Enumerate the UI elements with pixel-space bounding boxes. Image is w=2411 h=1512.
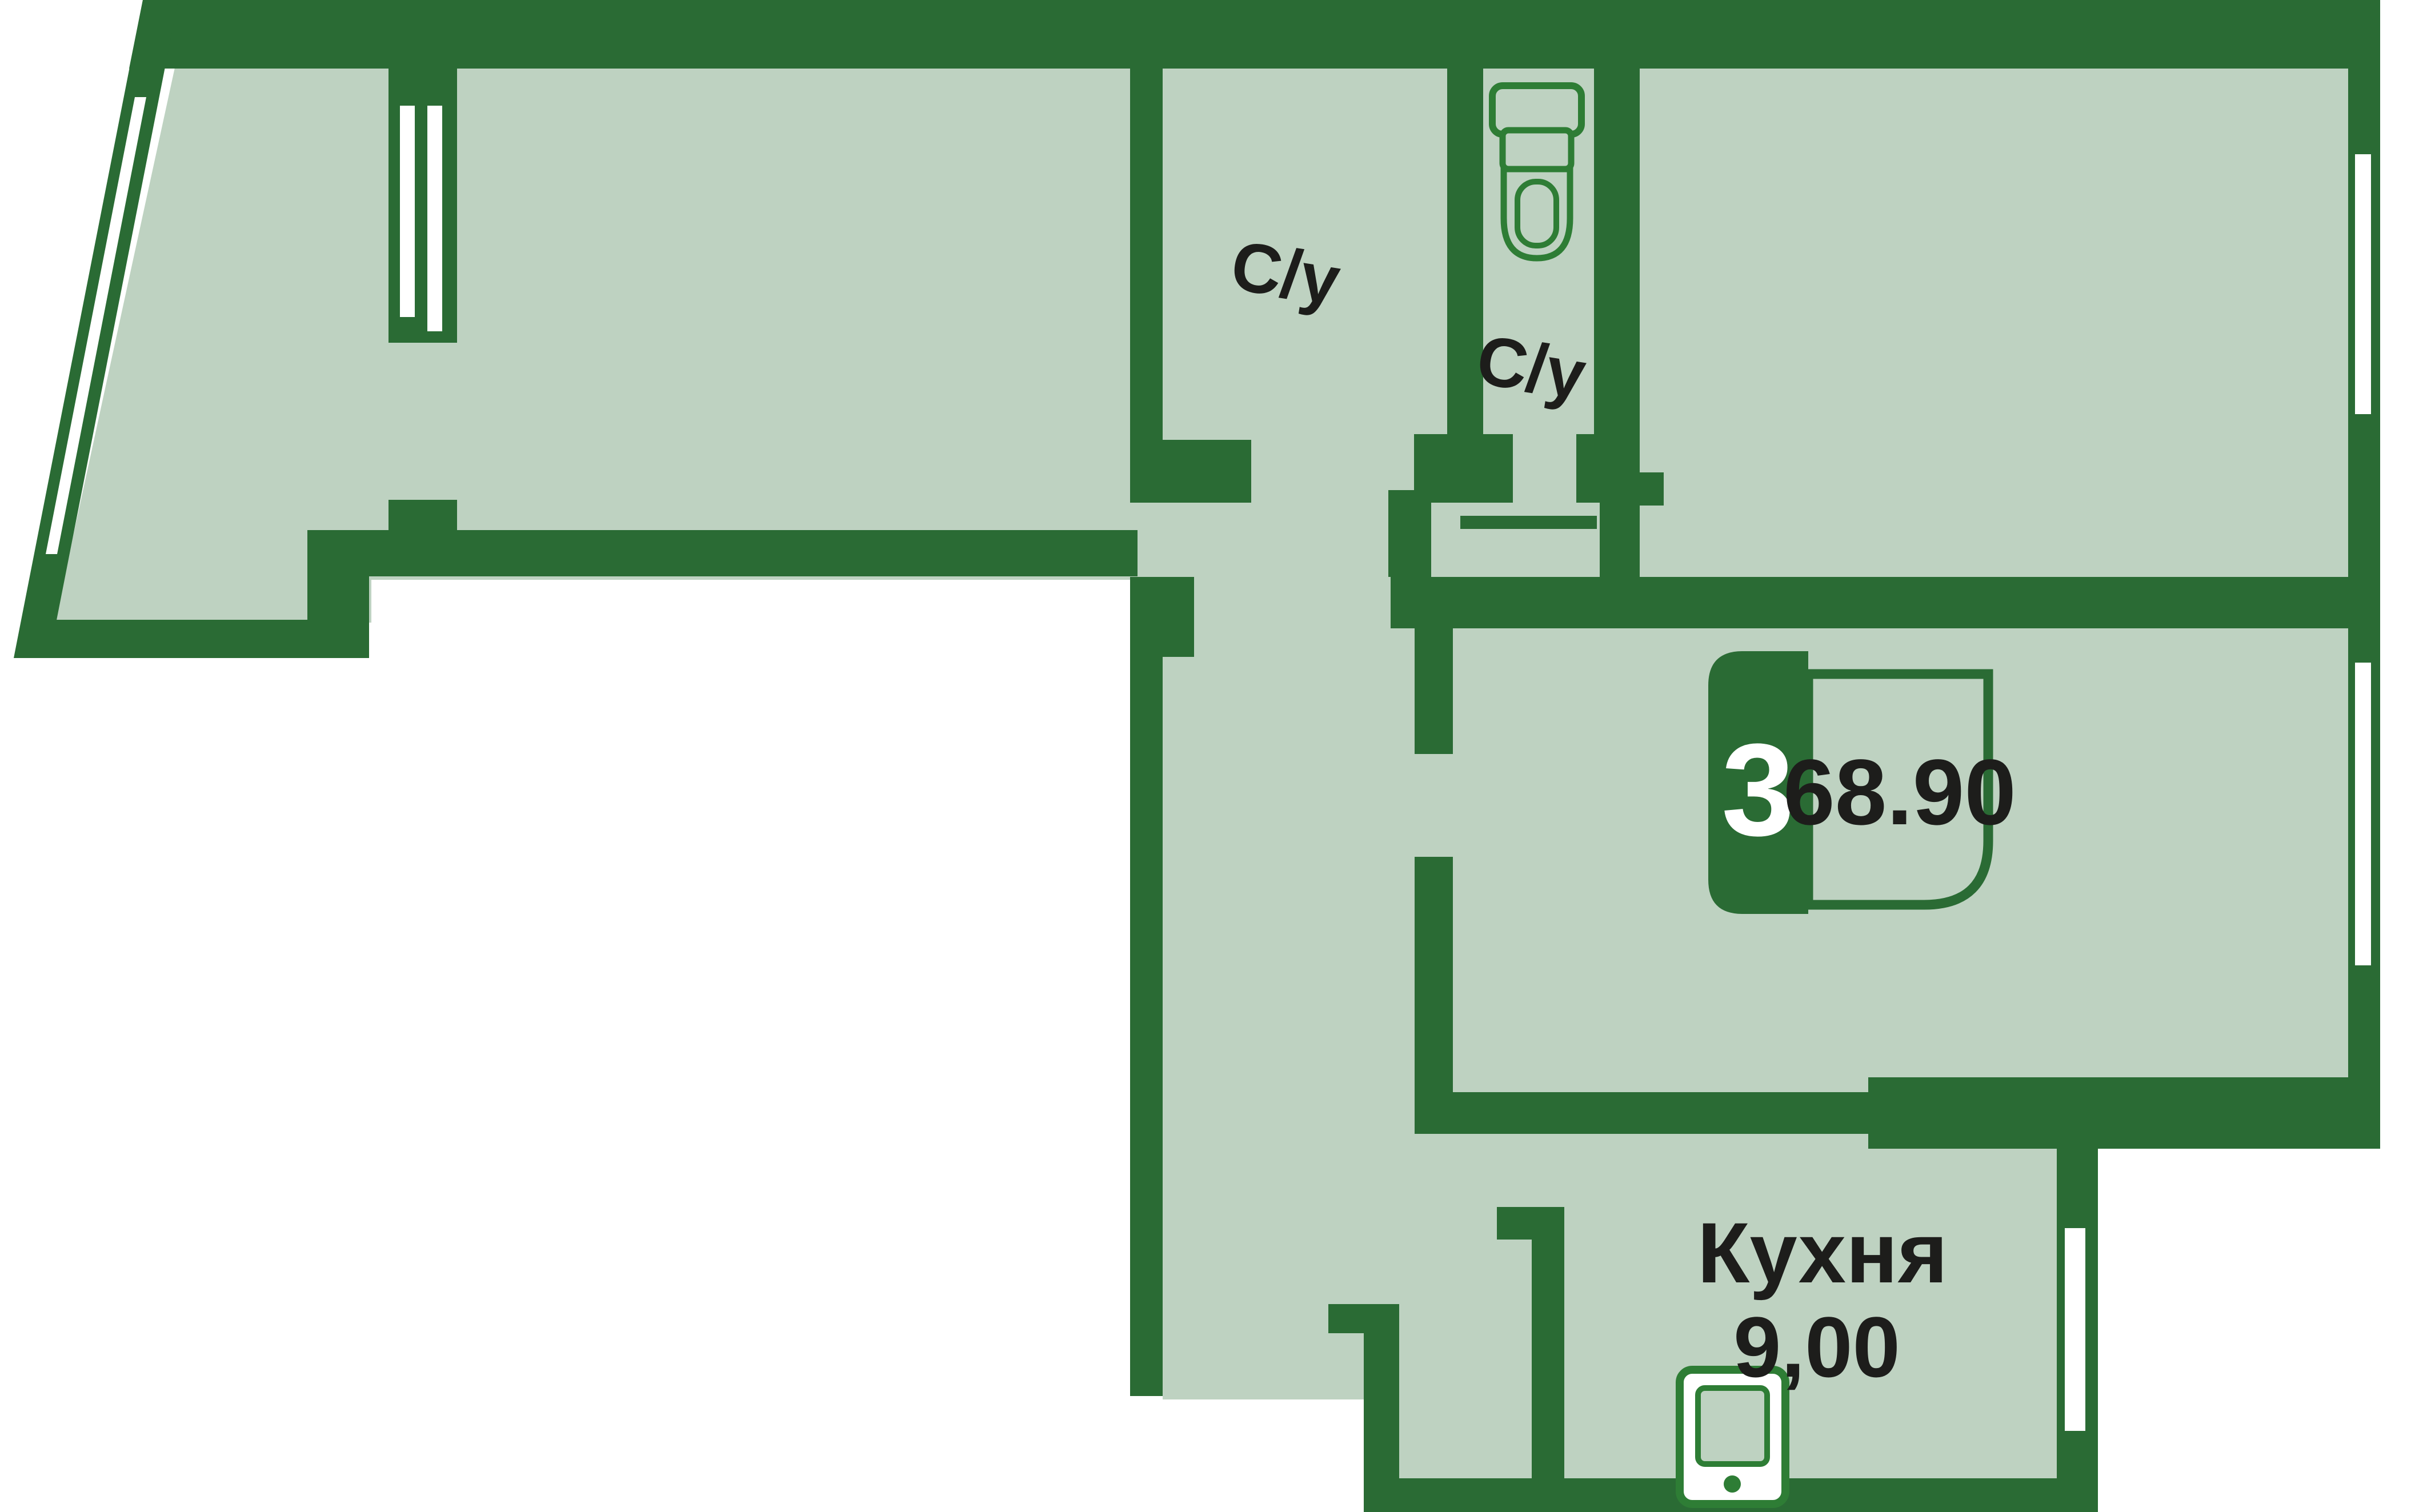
- corridor-left-wall-upper: [1130, 67, 1163, 503]
- window-pier-stub: [389, 500, 457, 576]
- kitchen-window: [2065, 1228, 2085, 1431]
- floor-plan-canvas: 3 68.90 С/у С/у Кухня 9,00: [0, 0, 2411, 1512]
- kitchen-left-wall-cap: [1497, 1207, 1564, 1240]
- window-pier: [389, 67, 457, 343]
- kitchen-left-wall: [1532, 1207, 1564, 1512]
- upper-rooms-floor: [1140, 57, 2365, 634]
- hall-south-wall: [1391, 577, 2348, 628]
- kitchen-area-label: 9,00: [1733, 1299, 1900, 1395]
- door-jamb-foot: [1163, 577, 1194, 657]
- floor-plan: 3 68.90 С/у С/у Кухня 9,00: [0, 0, 2411, 1512]
- bath1-bottom-wall-left: [1163, 440, 1251, 503]
- bedroom-bottom-wall-thick: [1868, 1077, 2380, 1149]
- apartment-area: 68.90: [1783, 740, 2016, 844]
- pier-window-1: [400, 106, 415, 317]
- toilet-icon: [1492, 86, 1581, 258]
- right-window-middle: [2355, 663, 2371, 965]
- bedroom-bottom-wall: [1415, 1092, 1868, 1134]
- area-badge: 3 68.90: [1708, 651, 2016, 914]
- hall-door-stub: [1388, 490, 1431, 577]
- corridor-left-wall-lower: [1130, 577, 1163, 1396]
- bedroom-left-wall-upper: [1415, 628, 1453, 754]
- hall-door-jamb-cap: [1600, 472, 1664, 506]
- kitchen-label: Кухня: [1697, 1205, 1948, 1301]
- entry-wall-cap: [1328, 1304, 1399, 1333]
- right-window-top: [2355, 154, 2371, 414]
- door-leaf: [1460, 516, 1597, 529]
- entry-wall: [1364, 1333, 1399, 1512]
- pier-window-2: [427, 106, 442, 331]
- top-exterior-wall: [129, 0, 2380, 69]
